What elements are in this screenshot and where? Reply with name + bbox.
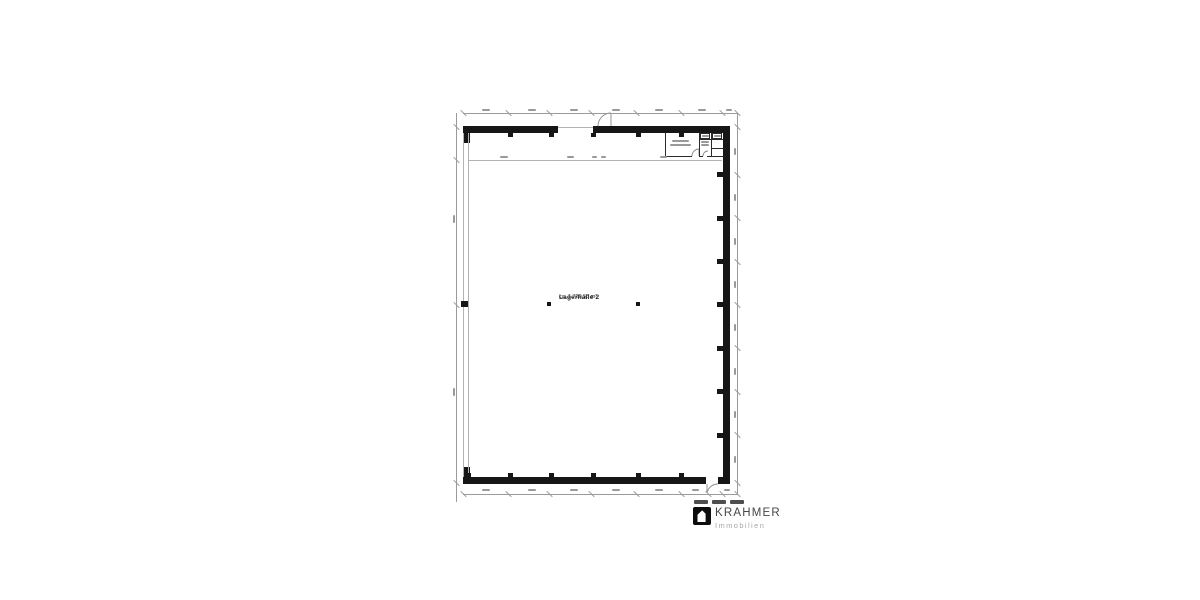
site-mark xyxy=(712,500,726,504)
dimension-text xyxy=(528,109,536,111)
site-mark xyxy=(730,500,744,504)
column-marker xyxy=(717,216,723,221)
dimension-text xyxy=(570,489,578,491)
column-marker xyxy=(508,133,513,137)
construction-line xyxy=(558,127,593,128)
dimension-text xyxy=(734,281,736,288)
column-marker xyxy=(636,133,641,137)
brand-subtitle: Immobilien xyxy=(715,522,781,530)
floor-plan: Lagerhalle 2 ca. 1.729,55 m² xyxy=(0,0,1200,600)
wall-segment xyxy=(463,126,558,133)
column-marker xyxy=(636,473,641,477)
construction-line xyxy=(468,133,469,477)
column-marker xyxy=(717,346,723,351)
dimension-text xyxy=(482,109,490,111)
dimension-text xyxy=(592,156,597,158)
dimension-text xyxy=(734,148,736,155)
dimension-text xyxy=(655,489,663,491)
dimension-text xyxy=(734,456,736,463)
dimension-text xyxy=(500,156,508,158)
wall-segment xyxy=(723,133,730,484)
door-swing-arc xyxy=(707,484,718,493)
room-partition-line xyxy=(699,156,703,157)
dimension-text xyxy=(734,324,736,331)
room-partition-line xyxy=(699,139,723,140)
dimension-text xyxy=(734,238,736,245)
column-marker xyxy=(508,473,513,477)
krahmer-door-icon xyxy=(693,507,711,525)
dimension-text xyxy=(567,156,574,158)
column-marker xyxy=(636,302,640,306)
dimension-text xyxy=(655,109,663,111)
column-marker xyxy=(679,473,684,477)
dimension-text xyxy=(601,156,606,158)
dimension-text xyxy=(734,411,736,418)
door-house-icon xyxy=(693,507,711,525)
dimension-text xyxy=(714,135,721,137)
dimension-text xyxy=(701,141,709,143)
brand-name: KRAHMER xyxy=(715,508,781,520)
wall-segment xyxy=(463,477,706,484)
brand-logo: KRAHMER Immobilien xyxy=(693,507,781,529)
dimension-text xyxy=(453,215,455,223)
dimension-text xyxy=(698,109,706,111)
dimension-text xyxy=(726,109,732,111)
column-marker xyxy=(717,302,723,307)
door-swing-arc xyxy=(692,149,699,156)
column-marker xyxy=(549,133,554,137)
brand-text: KRAHMER Immobilien xyxy=(715,507,781,529)
dimension-line xyxy=(463,113,738,114)
dimension-text xyxy=(660,156,667,158)
room-partition-line xyxy=(665,133,666,157)
column-marker xyxy=(717,172,723,177)
column-marker xyxy=(461,301,468,307)
dimension-text xyxy=(570,109,578,111)
column-marker xyxy=(717,389,723,394)
column-marker xyxy=(549,473,554,477)
dimension-line xyxy=(463,494,738,495)
hall-area: ca. 1.729,55 m² xyxy=(559,294,597,301)
wall-segment xyxy=(593,126,730,133)
dimension-text xyxy=(724,489,730,491)
dimension-text xyxy=(612,109,620,111)
door-swing-arc xyxy=(598,113,611,126)
door-swing-arcs xyxy=(0,0,1200,600)
column-marker xyxy=(679,133,684,137)
site-mark xyxy=(694,500,708,504)
dimension-text xyxy=(453,388,455,396)
dimension-text xyxy=(672,140,689,142)
dimension-text xyxy=(528,489,536,491)
wall-segment xyxy=(718,477,730,484)
column-marker xyxy=(717,433,723,438)
dimension-line xyxy=(456,113,457,502)
column-marker xyxy=(591,133,596,137)
construction-line xyxy=(469,160,722,161)
column-marker xyxy=(547,302,551,306)
room-partition-line xyxy=(707,156,723,157)
dimension-text xyxy=(692,489,699,491)
column-marker xyxy=(466,473,471,477)
column-marker xyxy=(717,259,723,264)
dimension-text xyxy=(670,144,691,146)
room-partition-line xyxy=(665,156,692,157)
dimension-text xyxy=(482,489,490,491)
column-marker xyxy=(591,473,596,477)
dimension-text xyxy=(734,368,736,375)
dimension-text xyxy=(701,144,709,146)
room-partition-line xyxy=(711,148,723,149)
dimension-text xyxy=(612,489,620,491)
dimension-text xyxy=(702,135,709,137)
dimension-text xyxy=(734,194,736,201)
